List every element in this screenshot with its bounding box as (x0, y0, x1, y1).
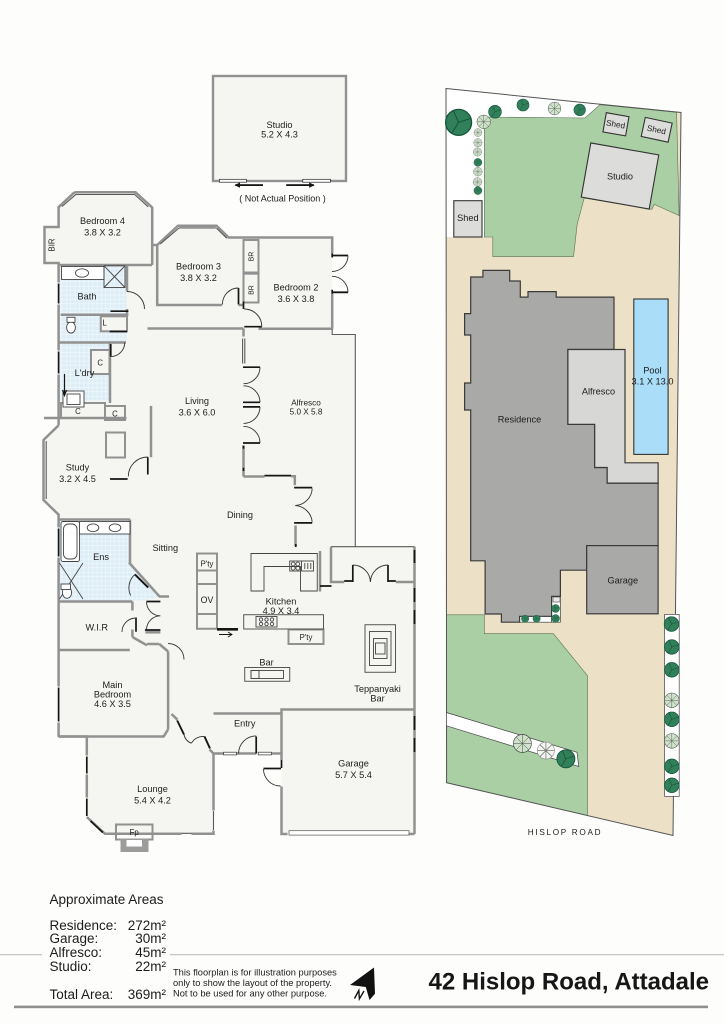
svg-text:Bar: Bar (259, 658, 273, 668)
svg-text:Garage: Garage (607, 576, 638, 586)
svg-text:C: C (97, 359, 103, 368)
svg-text:Pool: Pool (643, 366, 661, 376)
svg-text:Bar: Bar (370, 694, 384, 704)
svg-text:3.1 X 13.0: 3.1 X 13.0 (632, 377, 674, 387)
svg-text:C: C (75, 407, 81, 416)
svg-text:Kitchen: Kitchen (266, 597, 297, 607)
svg-text:Living: Living (185, 396, 209, 406)
svg-text:BR: BR (249, 252, 256, 262)
svg-text:Studio: Studio (607, 172, 633, 182)
svg-text:Study: Study (66, 463, 90, 473)
svg-text:HISLOP ROAD: HISLOP ROAD (528, 828, 603, 837)
svg-text:Bedroom 4: Bedroom 4 (80, 216, 125, 226)
svg-text:30m²: 30m² (135, 931, 166, 946)
svg-text:Garage: Garage (338, 759, 369, 769)
svg-text:P'ty: P'ty (300, 633, 313, 642)
svg-text:Bath: Bath (78, 292, 97, 302)
svg-text:BR: BR (249, 285, 256, 295)
svg-text:Ens: Ens (93, 552, 109, 562)
svg-text:Shed: Shed (457, 213, 478, 223)
svg-text:Bedroom: Bedroom (94, 690, 132, 700)
svg-text:W.I.R: W.I.R (86, 623, 109, 633)
svg-text:Fp: Fp (130, 828, 140, 837)
svg-text:5.4 X 4.2: 5.4 X 4.2 (134, 796, 171, 806)
svg-text:L: L (102, 319, 107, 328)
svg-text:Bedroom 2: Bedroom 2 (274, 283, 319, 293)
svg-text:only to show the layout of the: only to show the layout of the property. (173, 978, 332, 988)
svg-text:42 Hislop Road, Attadale: 42 Hislop Road, Attadale (429, 969, 710, 996)
svg-text:Studio: Studio (266, 120, 292, 130)
svg-text:5.7 X 5.4: 5.7 X 5.4 (335, 770, 372, 780)
svg-text:This floorplan is for illustra: This floorplan is for illustration purpo… (173, 968, 337, 978)
svg-text:22m²: 22m² (135, 959, 166, 974)
svg-text:OV: OV (201, 595, 214, 605)
svg-text:3.2 X 4.5: 3.2 X 4.5 (59, 474, 96, 484)
svg-text:Entry: Entry (234, 719, 256, 729)
svg-text:3.8 X 3.2: 3.8 X 3.2 (84, 228, 121, 238)
svg-text:BIR: BIR (48, 238, 57, 251)
svg-text:Not to be used for any other p: Not to be used for any other purpose. (173, 989, 327, 999)
svg-text:Main: Main (103, 680, 123, 690)
svg-text:Sitting: Sitting (153, 543, 179, 553)
svg-text:Bedroom 3: Bedroom 3 (176, 262, 221, 272)
svg-text:45m²: 45m² (135, 945, 166, 960)
svg-text:3.6 X 3.8: 3.6 X 3.8 (278, 294, 315, 304)
svg-text:Residence: Residence (498, 415, 541, 425)
svg-text:Total Area:: Total Area: (50, 987, 114, 1002)
svg-text:Alfresco: Alfresco (582, 387, 615, 397)
svg-text:4.6 X 3.5: 4.6 X 3.5 (94, 699, 131, 709)
svg-text:L'dry: L'dry (75, 368, 95, 378)
svg-text:5.2 X 4.3: 5.2 X 4.3 (261, 130, 298, 140)
svg-text:P'ty: P'ty (201, 560, 214, 569)
svg-text:Alfresco:: Alfresco: (50, 945, 103, 960)
svg-text:C: C (112, 410, 118, 419)
svg-text:Alfresco: Alfresco (291, 399, 321, 408)
svg-text:369m²: 369m² (128, 987, 167, 1002)
svg-text:Dining: Dining (227, 510, 253, 520)
svg-text:( Not Actual Position ): ( Not Actual Position ) (239, 194, 326, 204)
svg-text:Teppanyaki: Teppanyaki (354, 684, 400, 694)
svg-text:5.0 X 5.8: 5.0 X 5.8 (290, 407, 323, 416)
svg-text:4.9 X 3.4: 4.9 X 3.4 (263, 606, 300, 616)
svg-text:Approximate Areas: Approximate Areas (50, 892, 164, 907)
svg-text:Lounge: Lounge (137, 784, 168, 794)
svg-text:3.8 X 3.2: 3.8 X 3.2 (180, 273, 217, 283)
svg-text:Studio:: Studio: (50, 959, 92, 974)
svg-text:Garage:: Garage: (50, 931, 99, 946)
svg-text:3.6 X 6.0: 3.6 X 6.0 (179, 408, 216, 418)
